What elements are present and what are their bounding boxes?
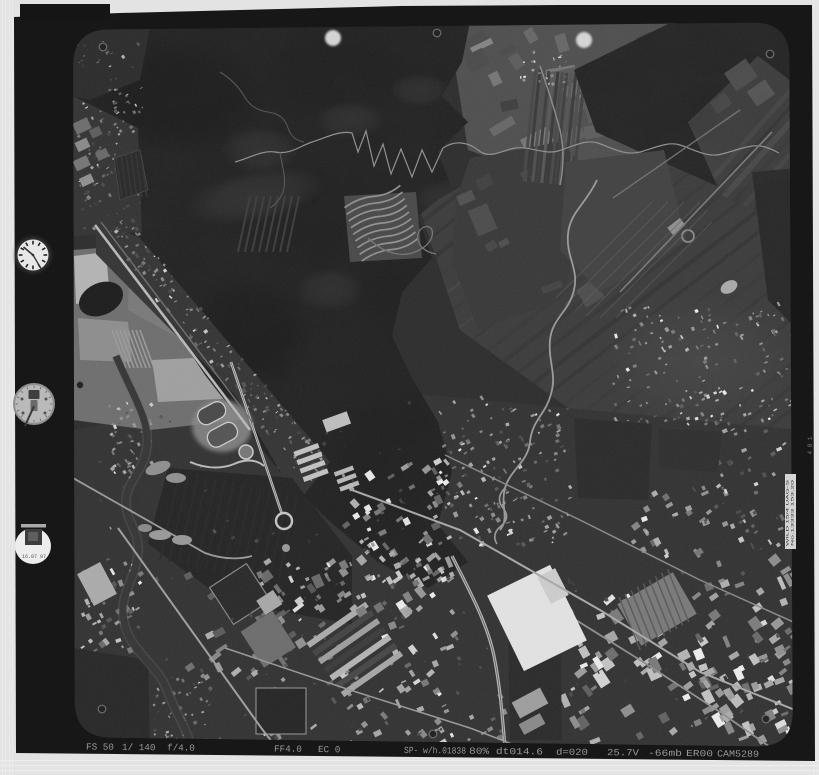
svg-text:80% dt014.6: 80% dt014.6 <box>469 746 543 758</box>
svg-text:f/4.0: f/4.0 <box>167 742 195 753</box>
svg-text:SP- w/h.01838: SP- w/h.01838 <box>404 745 466 757</box>
svg-text:FS 50: FS 50 <box>86 742 114 753</box>
svg-text:ER00: ER00 <box>686 748 713 759</box>
svg-text:CAM5289: CAM5289 <box>717 748 759 759</box>
svg-text:EC 0: EC 0 <box>318 744 340 755</box>
svg-text:-66mb: -66mb <box>648 748 682 759</box>
svg-text:WILD 15/4 UAG-S: WILD 15/4 UAG-S <box>786 479 790 546</box>
svg-text:16.07 97: 16.07 97 <box>22 554 46 560</box>
svg-text:FF4.0: FF4.0 <box>274 744 302 755</box>
svg-text:No.13333 153.20: No.13333 153.20 <box>790 480 794 546</box>
svg-text:1/ 140: 1/ 140 <box>122 742 156 753</box>
svg-text:25.7V: 25.7V <box>607 747 640 758</box>
svg-text:4 8 1: 4 8 1 <box>807 436 814 454</box>
svg-text:d=020: d=020 <box>556 747 588 758</box>
